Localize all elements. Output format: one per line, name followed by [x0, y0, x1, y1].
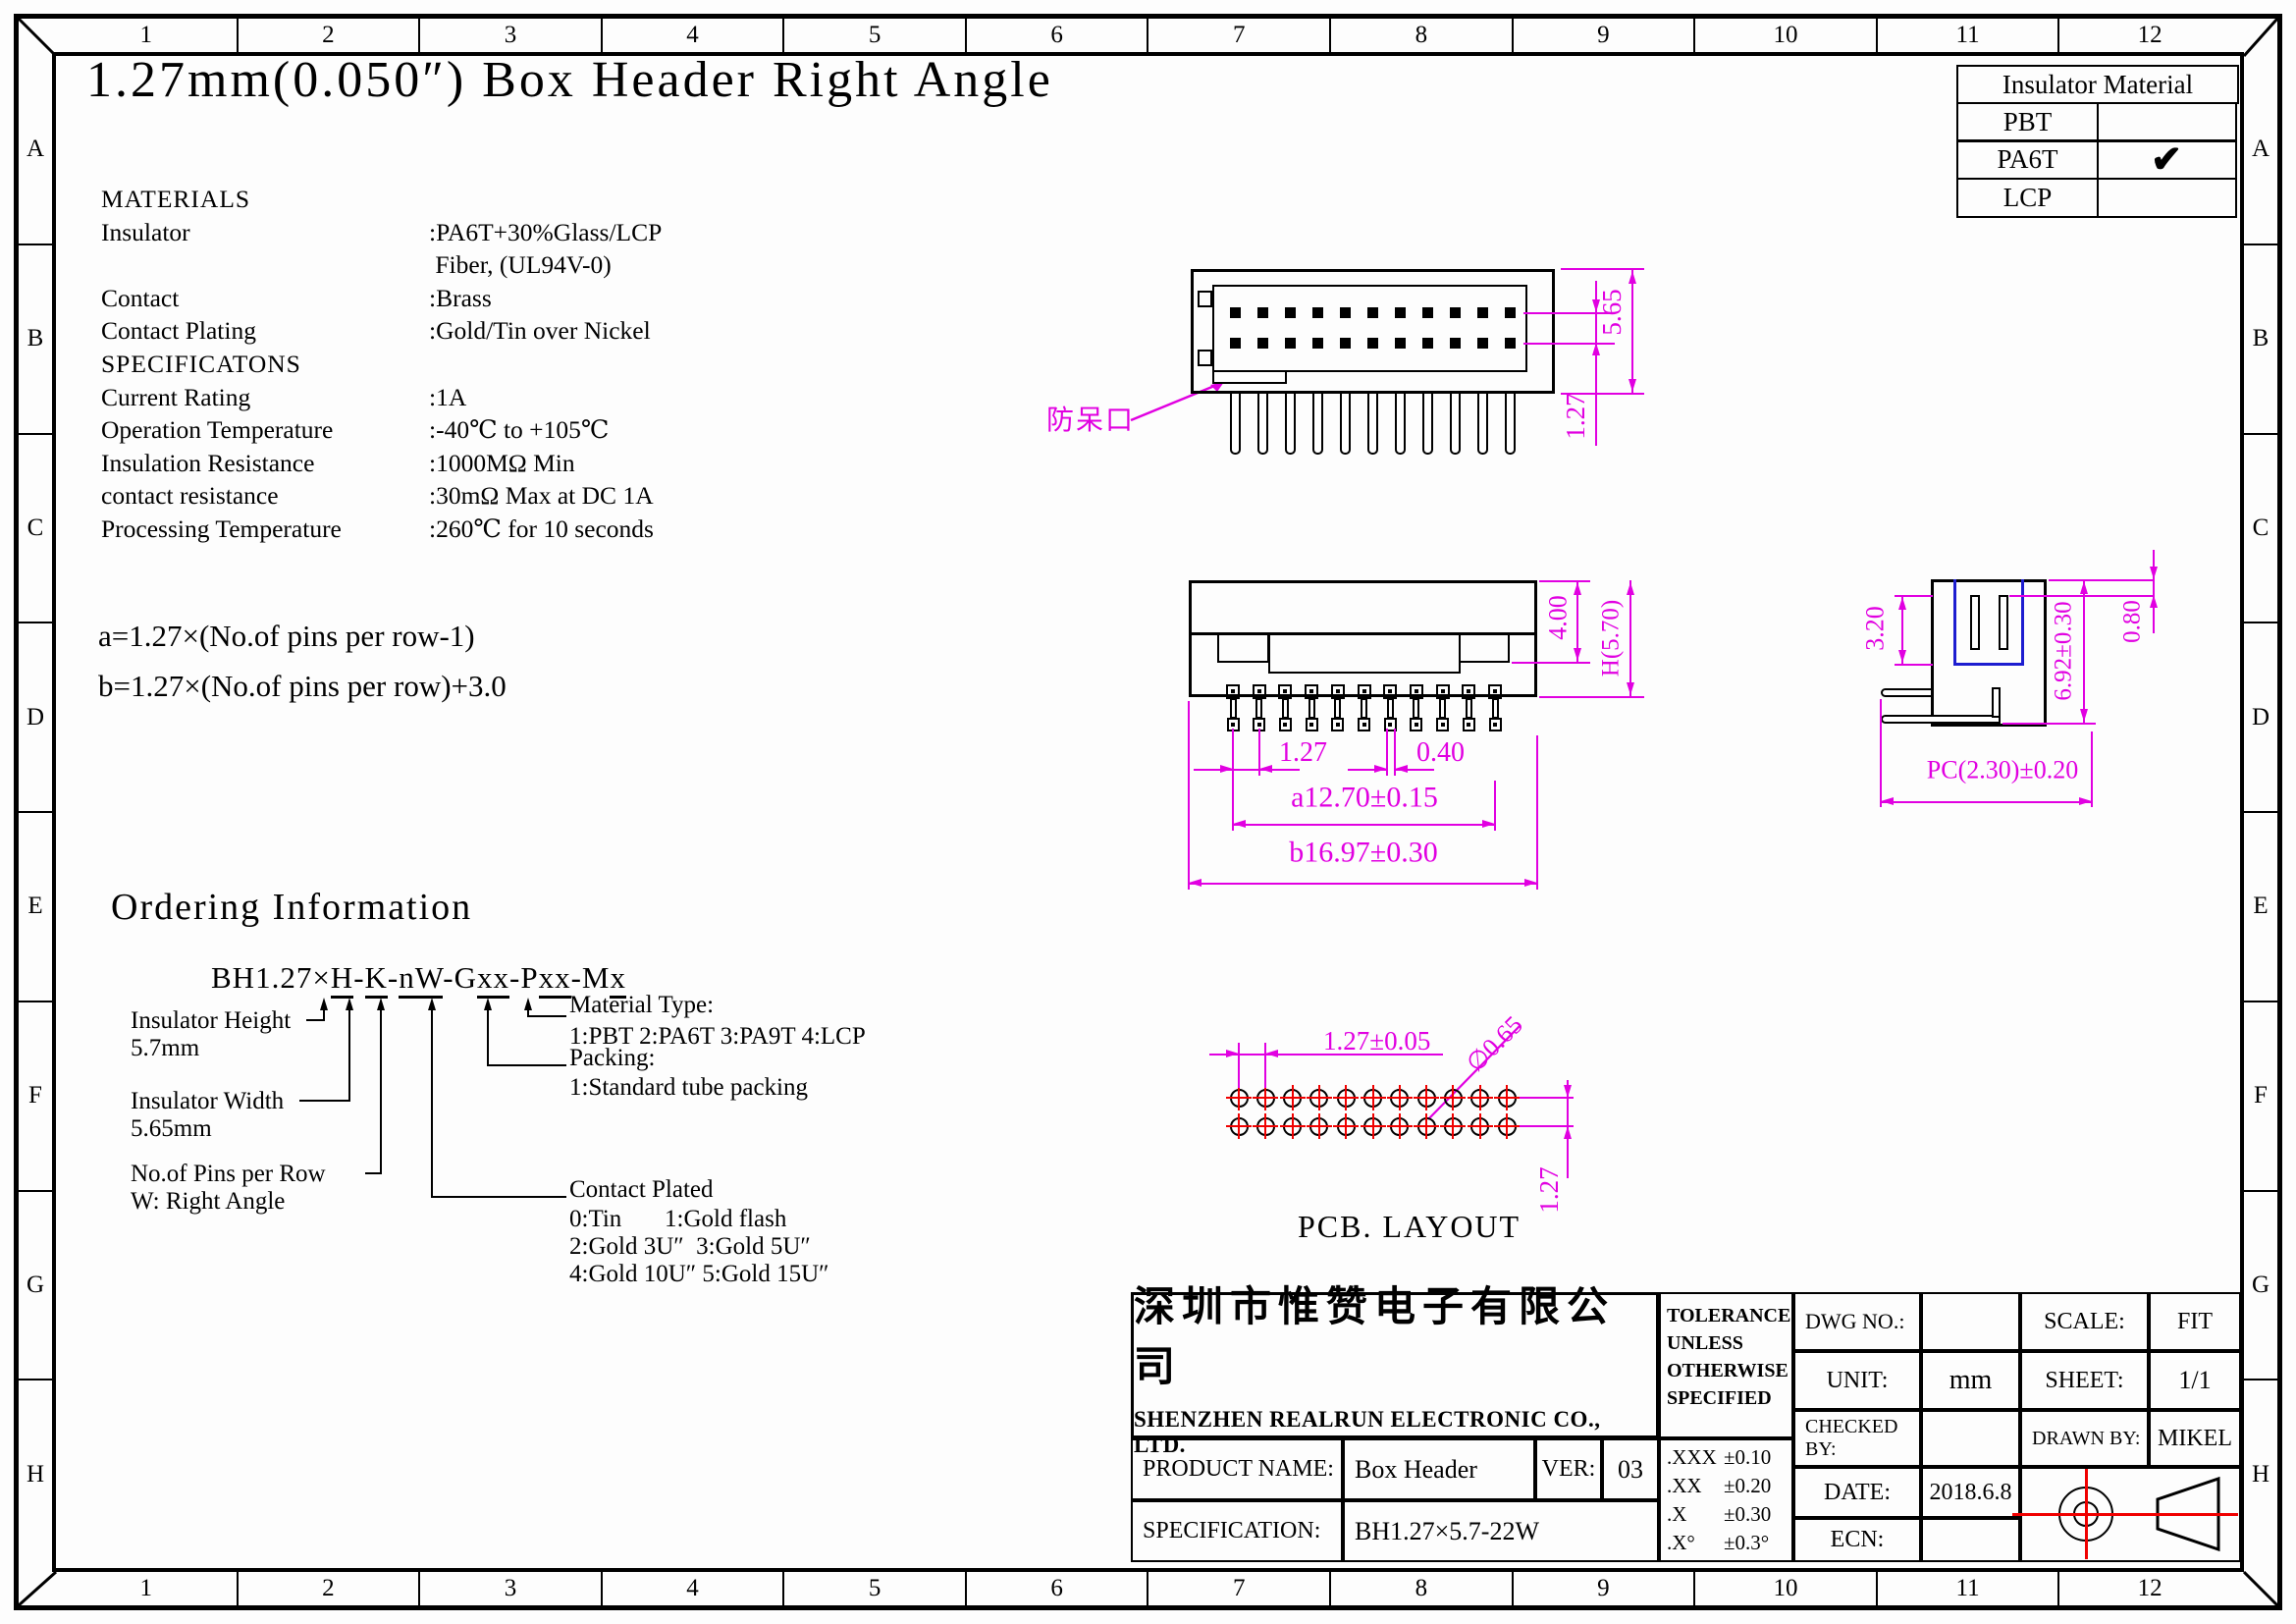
part-code-segment: xx	[539, 960, 571, 999]
zone-col-7: 7	[1148, 19, 1331, 52]
dim-arrow	[2150, 595, 2158, 608]
bottom-view-pin-dot	[1231, 723, 1235, 727]
bottom-view-pin-neck	[1255, 698, 1262, 719]
zone-col-6: 6	[967, 1572, 1149, 1605]
front-view-pin	[1505, 392, 1516, 455]
bottom-dim-b: b16.97±0.30	[1289, 837, 1437, 869]
bottom-view-center-block	[1268, 632, 1461, 674]
front-view-contact-row1	[1477, 307, 1488, 318]
zone-col-10: 10	[1695, 19, 1878, 52]
checked-by-value-cell	[1921, 1410, 2020, 1467]
product-name-label-cell: PRODUCT NAME:	[1131, 1438, 1343, 1500]
bottom-view-pin-dot	[1283, 689, 1287, 693]
scale-value: FIT	[2177, 1309, 2213, 1335]
side-view-contact-post	[1970, 595, 1980, 650]
unit-label: UNIT:	[1827, 1368, 1889, 1394]
dim-arrow	[2080, 581, 2088, 594]
bottom-view-pin-dot	[1388, 723, 1392, 727]
pcb-hole-crosshair	[1292, 1085, 1294, 1110]
zone-col-4: 4	[603, 1572, 785, 1605]
materials-row-label	[101, 248, 429, 282]
materials-row: Current Rating:1A	[101, 381, 847, 414]
sheet-label: SHEET:	[2045, 1368, 2123, 1394]
line	[1188, 701, 1190, 890]
dim-arrow	[2080, 709, 2088, 722]
zone-col-6: 6	[967, 19, 1149, 52]
line	[2083, 579, 2085, 724]
bottom-dim-total-height: H(5.70)	[1597, 600, 1625, 677]
dwg-no-value-cell	[1921, 1292, 2020, 1351]
dim-arrow	[1265, 1050, 1278, 1057]
zone-col-12: 12	[2059, 19, 2240, 52]
line	[1629, 580, 1631, 697]
materials-row: Fiber, (UL94V-0)	[101, 248, 847, 282]
pcb-hole-crosshair	[1399, 1085, 1401, 1110]
materials-row: Contact:Brass	[101, 282, 847, 315]
materials-row-value: :1A	[429, 381, 466, 414]
front-view-contact-row1	[1285, 307, 1296, 318]
front-view-pin	[1312, 392, 1323, 455]
line	[1895, 664, 1933, 666]
materials-row-value: :PA6T+30%Glass/LCP	[429, 216, 662, 249]
specification-value-cell: BH1.27×5.7-22W	[1343, 1500, 1659, 1562]
materials-block: MATERIALSInsulator:PA6T+30%Glass/LCP Fib…	[101, 183, 847, 546]
front-view-contact-row2	[1395, 338, 1406, 349]
dim-arrow	[1592, 299, 1600, 312]
ordering-left-label: W: Right Angle	[131, 1188, 285, 1216]
zone-col-4: 4	[603, 19, 785, 52]
dwg-no-label: DWG NO.:	[1805, 1309, 1904, 1334]
line	[1631, 269, 1633, 394]
part-code-segment: nW	[399, 960, 443, 999]
sheet-value: 1/1	[2178, 1366, 2211, 1395]
bottom-view-pin-dot	[1415, 723, 1418, 727]
sheet-label-cell: SHEET:	[2020, 1351, 2149, 1410]
page-title: 1.27mm(0.050″) Box Header Right Angle	[86, 51, 1053, 109]
ordering-right-label: 1:Standard tube packing	[569, 1074, 808, 1102]
materials-row: contact resistance:30mΩ Max at DC 1A	[101, 479, 847, 513]
ordering-right-label: 4:Gold 10U″ 5:Gold 15U″	[569, 1261, 829, 1288]
materials-row-label: Operation Temperature	[101, 413, 429, 447]
front-view-contact-row1	[1312, 307, 1323, 318]
formula-b: b=1.27×(No.of pins per row)+3.0	[98, 669, 507, 704]
front-view-pin	[1395, 392, 1406, 455]
dim-arrow	[1259, 765, 1272, 773]
insulator-table-material: PA6T	[1956, 139, 2099, 180]
bottom-view-pin-dot	[1388, 689, 1392, 693]
bottom-view-pin-neck	[1466, 698, 1472, 719]
zone-col-10: 10	[1695, 1572, 1878, 1605]
dim-arrow	[1374, 765, 1387, 773]
front-view-pin	[1230, 392, 1241, 455]
zone-col-5: 5	[784, 19, 967, 52]
materials-row-value: :1000MΩ Min	[429, 447, 575, 480]
unit-value: mm	[1949, 1365, 1993, 1396]
drawing-sheet: 123456789101112 123456789101112 ABCDEFGH…	[0, 0, 2296, 1624]
unit-label-cell: UNIT:	[1793, 1351, 1921, 1410]
side-dim-top: 0.80	[2118, 600, 2146, 643]
bottom-view-pin-dot	[1283, 723, 1287, 727]
zone-row-H: H	[2244, 1380, 2277, 1568]
dim-arrow	[1898, 650, 1906, 663]
bottom-view-pin-dot	[1309, 689, 1313, 693]
zone-col-11: 11	[1878, 1572, 2060, 1605]
sheet-value-cell: 1/1	[2149, 1351, 2241, 1410]
bottom-view-pin-dot	[1441, 723, 1445, 727]
dim-arrow	[1627, 582, 1634, 595]
tolerance-value: ±0.10	[1724, 1443, 1771, 1472]
zone-col-1: 1	[56, 19, 239, 52]
zone-col-3: 3	[420, 1572, 603, 1605]
pcb-hole-crosshair	[1399, 1113, 1401, 1139]
drawn-by-label-cell: DRAWN BY:	[2020, 1410, 2149, 1467]
dim-arrow	[1482, 820, 1495, 828]
side-view-cavity-bottom	[1953, 663, 2024, 666]
dim-arrow	[1189, 879, 1201, 887]
bottom-dim-pin-width: 0.40	[1416, 738, 1465, 769]
ordering-heading: Ordering Information	[111, 886, 472, 929]
side-view-cavity-left	[1953, 579, 1956, 666]
part-text-segment: -M	[571, 960, 611, 995]
tolerance-row: .XX±0.20	[1667, 1472, 1771, 1500]
tolerance-row: .X°±0.3°	[1667, 1529, 1769, 1557]
line	[2002, 723, 2096, 725]
dim-arrow	[1395, 765, 1408, 773]
part-code-segment: H	[331, 960, 353, 999]
zone-row-F: F	[2244, 1002, 2277, 1192]
bottom-view-pin-dot	[1336, 689, 1340, 693]
part-code-segment: K	[365, 960, 388, 999]
zone-row-D: D	[19, 623, 52, 813]
bottom-view-pin-dot	[1493, 723, 1497, 727]
materials-row: Processing Temperature:260℃ for 10 secon…	[101, 513, 847, 546]
zone-row-F: F	[19, 1002, 52, 1192]
zone-row-B: B	[19, 245, 52, 435]
ver-value-cell: 03	[1602, 1438, 1659, 1500]
zone-col-12: 12	[2059, 1572, 2240, 1605]
ordering-leader-line	[380, 1005, 383, 1174]
ordering-right-label: 2:Gold 3U″ 3:Gold 5U″	[569, 1233, 811, 1261]
zone-row-D: D	[2244, 623, 2277, 813]
tolerance-row: .X±0.30	[1667, 1500, 1771, 1529]
line	[1233, 824, 1495, 826]
materials-row-value: :Gold/Tin over Nickel	[429, 314, 651, 348]
bottom-view-end-block	[1459, 632, 1510, 663]
dwg-no-label-cell: DWG NO.:	[1793, 1292, 1921, 1351]
ver-label-cell: VER:	[1535, 1438, 1602, 1500]
ordering-leader-line	[432, 1196, 566, 1199]
front-view-pin	[1450, 392, 1461, 455]
ordering-leader-line	[487, 1005, 490, 1066]
bottom-view-pin-neck	[1334, 698, 1341, 719]
pcb-hole-crosshair	[1452, 1113, 1454, 1139]
scale-label-cell: SCALE:	[2020, 1292, 2149, 1351]
materials-row: Operation Temperature:-40℃ to +105℃	[101, 413, 847, 447]
line	[1523, 343, 1615, 345]
bottom-view-pin-dot	[1257, 689, 1261, 693]
zone-row-B: B	[2244, 245, 2277, 435]
dim-arrow	[1564, 1085, 1572, 1098]
zone-ruler-bottom: 123456789101112	[56, 1572, 2240, 1605]
front-view-contact-row1	[1257, 307, 1268, 318]
zone-col-3: 3	[420, 19, 603, 52]
ordering-left-label: Insulator Height	[131, 1007, 291, 1035]
line	[1512, 662, 1590, 664]
pcb-hole-crosshair	[1318, 1113, 1320, 1139]
bottom-view-pin-dot	[1415, 689, 1418, 693]
materials-row-value: :30mΩ Max at DC 1A	[429, 479, 654, 513]
side-view-bent-pin	[1881, 688, 1933, 697]
part-text-segment: -P	[509, 960, 539, 995]
ordering-left-label: No.of Pins per Row	[131, 1161, 326, 1188]
front-view-contact-row2	[1340, 338, 1351, 349]
front-view-contact-row1	[1340, 307, 1351, 318]
pcb-hole-crosshair	[1479, 1113, 1481, 1139]
front-view-contact-row1	[1422, 307, 1433, 318]
insulator-table-empty	[2097, 102, 2237, 142]
zone-ruler-top: 123456789101112	[56, 19, 2240, 52]
pcb-hole-crosshair	[1372, 1085, 1374, 1110]
dim-arrow	[1233, 820, 1246, 828]
part-text-segment: BH1.27×	[211, 960, 331, 995]
line	[1232, 738, 1234, 831]
tolerance-heading-cell: TOLERANCE UNLESS OTHERWISE SPECIFIED	[1659, 1292, 1793, 1438]
pcb-hole-crosshair	[1292, 1113, 1294, 1139]
materials-heading: SPECIFICATONS	[101, 348, 847, 381]
bottom-view-pin-neck	[1230, 698, 1237, 719]
pcb-hole-crosshair	[1452, 1085, 1454, 1110]
bottom-view-pin-dot	[1362, 689, 1366, 693]
bottom-view-pin-neck	[1439, 698, 1446, 719]
specification-label-cell: SPECIFICATION:	[1131, 1500, 1343, 1562]
front-view-contact-row2	[1257, 338, 1268, 349]
bottom-dim-step-height: 4.00	[1545, 595, 1574, 640]
date-value-cell: 2018.6.8	[1921, 1467, 2020, 1518]
insulator-table-empty	[2097, 178, 2237, 218]
date-label: DATE:	[1824, 1480, 1891, 1506]
company-box: 深圳市惟赞电子有限公司 SHENZHEN REALRUN ELECTRONIC …	[1131, 1292, 1659, 1438]
tolerance-decimals: .X°	[1667, 1529, 1724, 1557]
materials-row-value: :Brass	[429, 282, 492, 315]
front-view-pin	[1367, 392, 1378, 455]
bottom-view-pin-dot	[1467, 689, 1470, 693]
pcb-hole-crosshair	[1345, 1113, 1347, 1139]
side-dim-cavity-depth: 3.20	[1862, 606, 1891, 651]
ordering-left-label: Insulator Width	[131, 1088, 284, 1115]
tolerance-values-cell: .XXX±0.10.XX±0.20.X±0.30.X°±0.3°	[1659, 1438, 1793, 1562]
drawn-by-value-cell: MIKEL	[2149, 1410, 2241, 1467]
front-view-contact-row2	[1477, 338, 1488, 349]
bottom-dim-a: a12.70±0.15	[1291, 782, 1438, 814]
pcb-dim-row-pitch: 1.27	[1535, 1166, 1565, 1213]
company-name-cn: 深圳市惟赞电子有限公司	[1134, 1273, 1656, 1393]
ordering-left-label: 5.7mm	[131, 1035, 199, 1062]
ecn-label: ECN:	[1831, 1527, 1885, 1553]
tolerance-decimals: .XX	[1667, 1472, 1724, 1500]
bottom-view-pin-neck	[1282, 698, 1289, 719]
dim-arrow	[1627, 682, 1634, 695]
pcb-hole-crosshair	[1506, 1113, 1508, 1139]
date-label-cell: DATE:	[1793, 1467, 1921, 1518]
ordering-leader-line	[299, 1100, 349, 1103]
bottom-view-pin-dot	[1441, 689, 1445, 693]
front-view-key-notch	[1198, 350, 1212, 366]
dim-arrow	[2079, 797, 2092, 805]
specification-value: BH1.27×5.7-22W	[1355, 1517, 1539, 1546]
front-view-contact-row2	[1450, 338, 1461, 349]
pcb-hole-crosshair	[1425, 1085, 1427, 1110]
front-view-cavity	[1212, 285, 1527, 372]
date-value: 2018.6.8	[1930, 1480, 2012, 1506]
scale-value-cell: FIT	[2149, 1292, 2241, 1351]
bottom-view-pin-neck	[1361, 698, 1367, 719]
dim-arrow	[1574, 648, 1581, 661]
tolerance-heading: TOLERANCE UNLESS OTHERWISE SPECIFIED	[1667, 1302, 1790, 1412]
pcb-hole-crosshair	[1238, 1113, 1240, 1139]
side-view-bent-pin	[1881, 715, 2001, 724]
side-dim-height: 6.92±0.30	[2050, 601, 2077, 700]
bottom-view-pin-dot	[1257, 723, 1261, 727]
tolerance-value: ±0.30	[1724, 1500, 1771, 1529]
front-keying-label: 防呆口	[1046, 406, 1135, 437]
zone-col-8: 8	[1331, 19, 1514, 52]
zone-col-7: 7	[1148, 1572, 1331, 1605]
front-view-pin	[1257, 392, 1268, 455]
formula-a: a=1.27×(No.of pins per row-1)	[98, 619, 475, 654]
dim-arrow	[1898, 597, 1906, 610]
insulator-table-material: PBT	[1956, 102, 2099, 142]
dim-arrow	[1629, 271, 1636, 284]
bottom-view-pin-dot	[1336, 723, 1340, 727]
ordering-leader-line	[365, 1172, 381, 1175]
pcb-dim-pitch: 1.27±0.05	[1323, 1027, 1430, 1056]
pcb-hole-crosshair	[1318, 1085, 1320, 1110]
line	[1539, 696, 1644, 698]
front-view-pin	[1285, 392, 1296, 455]
materials-row-label: Insulator	[101, 216, 429, 249]
ordering-leader-line	[528, 1015, 566, 1018]
pcb-hole-crosshair	[1479, 1085, 1481, 1110]
front-view-polarize-step	[1212, 370, 1287, 384]
materials-heading: MATERIALS	[101, 183, 847, 216]
zone-row-A: A	[19, 56, 52, 245]
front-view-key-notch	[1198, 291, 1212, 307]
insulator-table-material: LCP	[1956, 178, 2099, 218]
bottom-view-pin-neck	[1413, 698, 1419, 719]
line	[1881, 801, 2092, 803]
front-view-contact-row1	[1230, 307, 1241, 318]
pcb-hole-crosshair	[1345, 1085, 1347, 1110]
materials-row: Insulation Resistance:1000MΩ Min	[101, 447, 847, 480]
scale-label: SCALE:	[2044, 1309, 2125, 1335]
dim-arrow	[2150, 567, 2158, 579]
part-code-segment: xx	[477, 960, 509, 999]
pcb-hole-crosshair	[1506, 1085, 1508, 1110]
part-text-segment: -G	[443, 960, 477, 995]
bottom-view-end-block	[1217, 632, 1269, 663]
zone-ruler-left: ABCDEFGH	[19, 56, 52, 1568]
bottom-view-pin-neck	[1308, 698, 1315, 719]
front-view-contact-row2	[1505, 338, 1516, 349]
front-view-contact-row1	[1505, 307, 1516, 318]
front-view-pin	[1340, 392, 1351, 455]
zone-col-2: 2	[239, 1572, 421, 1605]
line	[2049, 579, 2155, 581]
materials-row-label: Insulation Resistance	[101, 447, 429, 480]
dim-arrow	[1881, 797, 1894, 805]
bottom-view-pin-dot	[1362, 723, 1366, 727]
ecn-value-cell	[1921, 1518, 2020, 1562]
front-view-contact-row2	[1230, 338, 1241, 349]
insulator-table-header: Insulator Material	[1956, 65, 2239, 104]
front-view-contact-row1	[1395, 307, 1406, 318]
zone-row-G: G	[19, 1192, 52, 1381]
pcb-hole-crosshair	[1425, 1113, 1427, 1139]
ordering-left-label: 5.65mm	[131, 1115, 212, 1143]
pcb-hole-crosshair	[1372, 1113, 1374, 1139]
front-view-pin	[1422, 392, 1433, 455]
materials-row-value: Fiber, (UL94V-0)	[429, 248, 612, 282]
tolerance-value: ±0.20	[1724, 1472, 1771, 1500]
insulator-material-table: Insulator MaterialPBTPA6T✔LCP	[1956, 65, 2239, 218]
checked-by-label-cell: CHECKED BY:	[1793, 1410, 1921, 1467]
side-view-body	[1931, 579, 2047, 727]
dim-arrow	[1629, 379, 1636, 392]
dim-arrow	[1574, 582, 1581, 595]
ordering-leader-line	[431, 1005, 434, 1198]
front-view-contact-row2	[1312, 338, 1323, 349]
ordering-part-number: BH1.27×H-K-nW-Gxx-Pxx-Mx	[211, 960, 626, 996]
pcb-hole-crosshair	[1264, 1113, 1266, 1139]
zone-col-11: 11	[1878, 19, 2060, 52]
front-view-contact-row2	[1422, 338, 1433, 349]
zone-col-1: 1	[56, 1572, 239, 1605]
pcb-hole-crosshair	[1264, 1085, 1266, 1110]
materials-row-value: :-40℃ to +105℃	[429, 413, 609, 447]
line	[1880, 699, 1882, 807]
ordering-leader-line	[488, 1064, 566, 1067]
materials-row-label: Contact	[101, 282, 429, 315]
projection-crosshair-h	[2012, 1513, 2238, 1516]
ordering-right-label: Contact Plated	[569, 1176, 714, 1204]
zone-ruler-right: ABCDEFGH	[2244, 56, 2277, 1568]
zone-col-8: 8	[1331, 1572, 1514, 1605]
checked-by-label: CHECKED BY:	[1805, 1416, 1919, 1461]
bottom-dim-pitch: 1.27	[1279, 738, 1327, 769]
bottom-view-pin-dot	[1467, 723, 1470, 727]
drawn-by-label: DRAWN BY:	[2032, 1428, 2140, 1450]
product-name-label: PRODUCT NAME:	[1143, 1456, 1334, 1483]
line	[2153, 550, 2155, 633]
product-name-cell: Box Header	[1343, 1438, 1535, 1500]
materials-row-value: :260℃ for 10 seconds	[429, 513, 654, 546]
line	[1194, 769, 1300, 771]
tolerance-value: ±0.3°	[1724, 1529, 1769, 1557]
bottom-view-pin-dot	[1231, 689, 1235, 693]
zone-col-5: 5	[784, 1572, 967, 1605]
front-view-contact-row1	[1450, 307, 1461, 318]
part-text-segment: -	[353, 960, 364, 995]
tolerance-decimals: .X	[1667, 1500, 1724, 1529]
materials-row: Contact Plating:Gold/Tin over Nickel	[101, 314, 847, 348]
tolerance-decimals: .XXX	[1667, 1443, 1724, 1472]
front-view-contact-row2	[1285, 338, 1296, 349]
side-view-contact-post	[1999, 595, 2008, 650]
materials-row: Insulator:PA6T+30%Glass/LCP	[101, 216, 847, 249]
zone-row-C: C	[19, 435, 52, 624]
ordering-leader-line	[306, 1019, 324, 1022]
zone-row-E: E	[19, 813, 52, 1002]
